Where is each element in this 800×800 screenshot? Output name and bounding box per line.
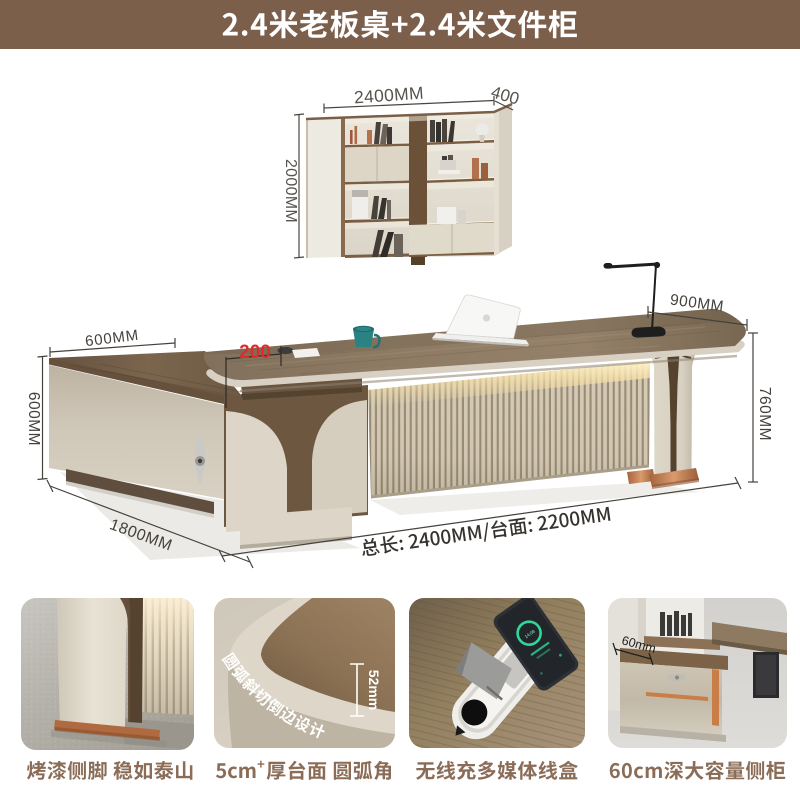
svg-text:52mm: 52mm bbox=[366, 670, 382, 710]
svg-text:760MM: 760MM bbox=[756, 387, 773, 441]
svg-text:2000MM: 2000MM bbox=[282, 159, 299, 223]
svg-text:600MM: 600MM bbox=[25, 392, 42, 446]
svg-text:200: 200 bbox=[239, 342, 271, 363]
